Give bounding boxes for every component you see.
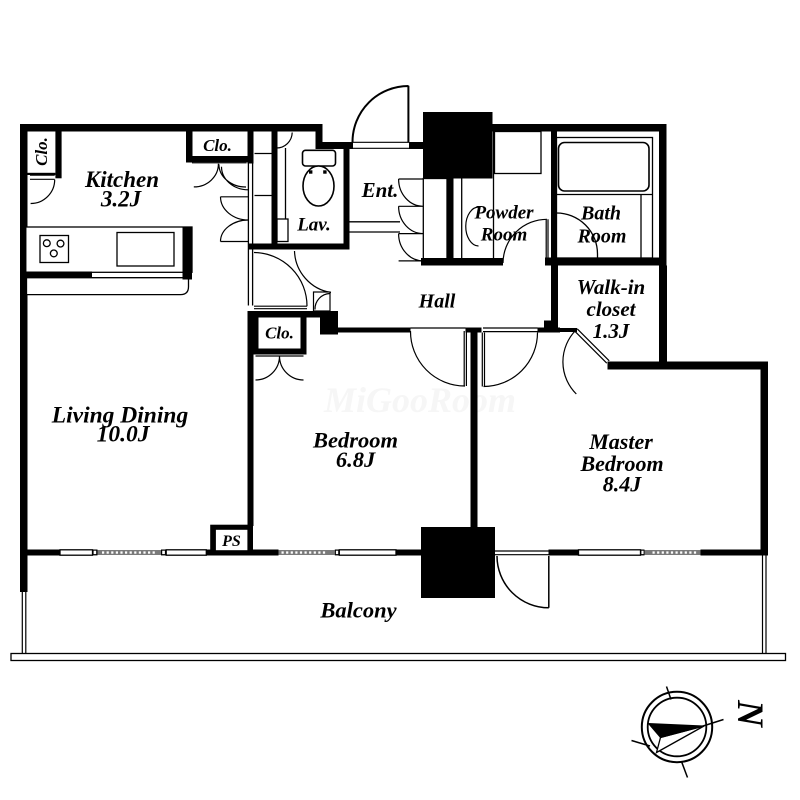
svg-text:Bath: Bath: [580, 203, 621, 225]
svg-text:3.2J: 3.2J: [100, 187, 143, 212]
svg-text:N: N: [729, 699, 770, 728]
svg-text:Hall: Hall: [418, 291, 456, 313]
svg-text:Clo.: Clo.: [265, 324, 294, 343]
svg-text:Ent.: Ent.: [361, 178, 399, 202]
svg-text:Powder: Powder: [473, 203, 534, 224]
svg-text:6.8J: 6.8J: [336, 447, 376, 472]
svg-text:Room: Room: [577, 226, 627, 248]
svg-text:10.0J: 10.0J: [97, 422, 151, 448]
svg-text:Room: Room: [480, 225, 527, 246]
svg-text:8.4J: 8.4J: [603, 472, 643, 497]
svg-text:closet: closet: [587, 297, 637, 321]
svg-text:1.3J: 1.3J: [593, 319, 631, 343]
svg-text:Balcony: Balcony: [319, 598, 397, 623]
svg-text:PS: PS: [221, 533, 241, 550]
svg-text:Clo.: Clo.: [203, 136, 232, 155]
svg-text:Walk-in: Walk-in: [577, 275, 645, 299]
svg-text:Clo.: Clo.: [32, 137, 51, 166]
svg-text:Lav.: Lav.: [296, 215, 331, 236]
